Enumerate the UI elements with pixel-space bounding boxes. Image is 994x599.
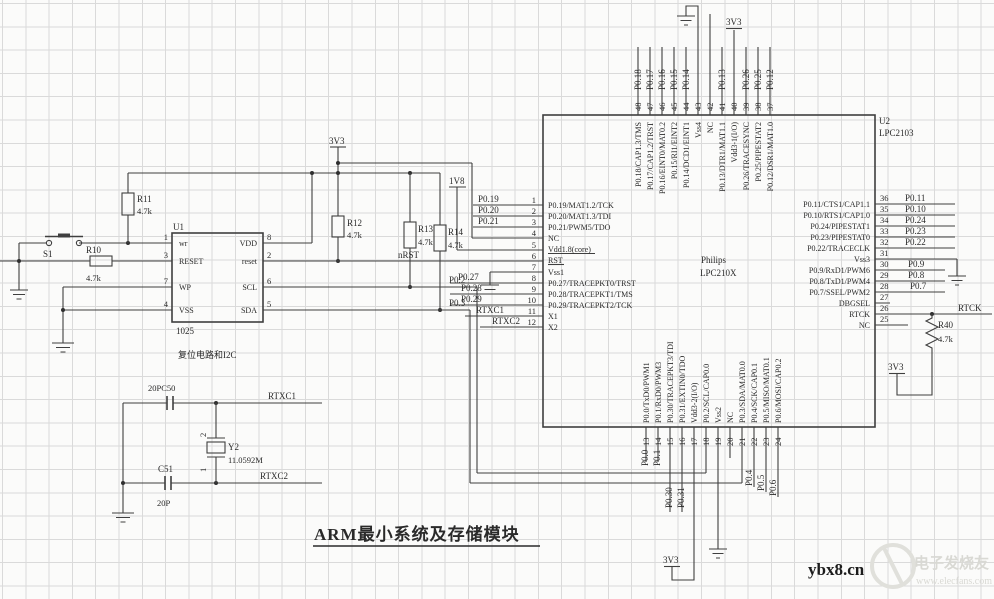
u2-pin-num: 17	[689, 438, 699, 447]
net-label: P0.18	[633, 69, 643, 90]
u1-pin-num: 2	[267, 250, 271, 260]
net-label: RTXC1	[476, 305, 504, 315]
ground-icon	[52, 343, 74, 352]
u1-pin-num: 4	[164, 299, 169, 309]
watermark: ybx8.cn 电子发烧友 www.elecfans.com	[808, 545, 992, 587]
u2-pin-num: 32	[880, 237, 889, 247]
u1-wiring	[0, 241, 172, 343]
net-label: P0.10	[905, 204, 926, 214]
net-label-nrst: nRST	[398, 250, 420, 260]
u2-pin-name: DBGSEL	[839, 299, 870, 308]
u2-pin-name: P0.27/TRACEPKT0/TRST	[548, 279, 636, 288]
schematic-drawing: U1 1025 复位电路和I2C wr RESET WP VSS VDD res…	[0, 0, 994, 599]
u2-pin-num: 2	[532, 206, 536, 216]
ground-icon	[709, 549, 727, 558]
net-label: P0.11	[905, 193, 925, 203]
u2-pin-num: 7	[532, 262, 536, 272]
u2-pin-name: P0.22/TRACECLK	[807, 244, 870, 253]
r13-value: 4.7k	[418, 237, 434, 247]
ground-icon	[677, 16, 695, 25]
u2-pin-num: 27	[880, 292, 889, 302]
net-label-rtxc1: RTXC1	[268, 391, 296, 401]
y2-ref: Y2	[228, 442, 239, 452]
watermark-brand: 电子发烧友	[914, 554, 989, 572]
net-label: P0.26	[741, 69, 751, 90]
u2-pin-name: X2	[548, 323, 558, 332]
c50-label: 20PC50	[148, 383, 175, 393]
u2-pin-name: Vss3	[854, 255, 870, 264]
u2-family: LPC210X	[700, 268, 737, 278]
u2-pin-name: NC	[706, 122, 715, 133]
u2-pin-name: P0.29/TRACEPKT2/TCK	[548, 301, 632, 310]
u2-pin-name: Vss2	[714, 407, 723, 423]
u2-pin-num: 31	[880, 248, 889, 258]
net-label: P0.0	[640, 449, 650, 466]
u2-pin-num: 13	[641, 438, 651, 447]
u2-pin-name: RTCK	[849, 310, 870, 319]
u2-right-pins: P0.11/CTS1/CAP1.1 P0.10/RTS1/CAP1.0 P0.2…	[803, 193, 992, 330]
y2-pin-num: 1	[198, 468, 208, 472]
net-label: P0.27	[458, 272, 479, 282]
net-label: P0.9	[908, 259, 925, 269]
u2-pin-num: 25	[880, 314, 889, 324]
u2-pin-name: P0.13/DTR1/MAT1.1	[718, 122, 727, 192]
u2-maker: Philips	[701, 255, 727, 265]
u2-pin-num: 33	[880, 226, 889, 236]
u2-pin-num: 47	[645, 103, 655, 112]
u2-pin-name: P0.4/SCK/CAP0.1	[750, 363, 759, 423]
u2-part: LPC2103	[879, 128, 914, 138]
watermark-url: www.elecfans.com	[916, 576, 992, 587]
u2-pin-name: P0.11/CTS1/CAP1.1	[803, 200, 870, 209]
u2-pin-name: P0.25/PIPESTAT2	[754, 122, 763, 182]
sheet-title: ARM最小系统及存储模块	[313, 524, 540, 546]
net-label-rtck: RTCK	[958, 303, 982, 313]
net-label: P0.30	[664, 487, 674, 508]
y2-crystal	[207, 403, 225, 483]
u2-pin-num: 37	[765, 103, 775, 112]
ground-icon	[948, 276, 966, 285]
u2-pin-num: 22	[749, 438, 759, 447]
u2-pin-name: Vdd3-2(I/O)	[690, 382, 699, 423]
net-label: P0.28	[461, 283, 482, 293]
net-label: P0.15	[669, 69, 679, 90]
power-label: 3V3	[888, 362, 904, 372]
u2-pin-num: 21	[737, 438, 747, 447]
r14-resistor: R14 4.7k	[434, 173, 464, 312]
net-label: P0.19	[478, 194, 499, 204]
u2-pin-num: 40	[729, 103, 739, 112]
u1-pin-name: SCL	[242, 283, 257, 292]
u2-pin-num: 29	[880, 270, 889, 280]
u2-ref: U2	[879, 116, 890, 126]
r12-ref: R12	[347, 218, 362, 228]
net-label: P0.23	[905, 226, 926, 236]
r11-resistor: R11 4.7k	[122, 173, 153, 243]
u2-bottom-pins: 3V3 P0.0/TxD0/PWM1 P0.1/RxD0/PWM3 P0.30/…	[640, 341, 783, 580]
r40-value: 4.7k	[938, 334, 954, 344]
u2-pin-num: 46	[657, 103, 667, 112]
u2-pin-num: 30	[880, 259, 889, 269]
u2-pin-name: P0.24/PIPESTAT1	[810, 222, 870, 231]
u2-pin-name: P0.18/CAP1.3/TMS	[634, 122, 643, 187]
u2-pin-num: NC	[859, 321, 870, 330]
u2-pin-num: 23	[761, 438, 771, 447]
u2-pin-num: 15	[665, 438, 675, 447]
u2-pin-num: 45	[669, 103, 679, 112]
u2-pin-name: P0.19/MAT1.2/TCK	[548, 201, 614, 210]
r13-ref: R13	[418, 224, 434, 234]
u2-pin-name: P0.6/MOSI/CAP0.2	[774, 359, 783, 423]
watermark-site: ybx8.cn	[808, 560, 865, 579]
u2-pin-name: Vss4	[694, 122, 703, 138]
r11-value: 4.7k	[137, 206, 153, 216]
u2-pin-num: 41	[717, 103, 727, 112]
u2-pin-name: P0.12/DSR1/MAT1.0	[766, 122, 775, 191]
u1-pin-num: 8	[267, 232, 271, 242]
net-label: P0.20	[478, 205, 499, 215]
net-label: P0.4	[744, 469, 754, 486]
u2-pin-name: P0.3/SDA/MAT0.0	[738, 361, 747, 423]
u2-pin-num: 4	[532, 228, 537, 238]
title-text: ARM最小系统及存储模块	[314, 524, 520, 544]
u2-pin-num: 35	[880, 204, 889, 214]
u1-pin-name: wr	[179, 239, 188, 248]
power-label: 1V8	[449, 176, 465, 186]
u2-pin-name: P0.23/PIPESTAT0	[810, 233, 870, 242]
power-label: 3V3	[329, 136, 345, 146]
power-flag-3v3-main: 3V3	[329, 136, 346, 147]
u2-pin-name: P0.9/RxD1/PWM6	[809, 266, 870, 275]
u2-pin-name: X1	[548, 312, 558, 321]
u2-pin-name: P0.17/CAP1.2/TRST	[646, 122, 655, 190]
u2-pin-name: P0.31/EXTIN0/TDO	[678, 355, 687, 423]
u2-pin-num: 39	[741, 103, 751, 112]
u1-pin-num: 1	[164, 232, 168, 242]
u2-pin-name: P0.28/TRACEPKT1/TMS	[548, 290, 633, 299]
u2-pin-num: 44	[681, 102, 691, 111]
u1-pin-name: WP	[179, 283, 192, 292]
c51-capacitor	[165, 476, 171, 490]
r10-value: 4.7k	[86, 273, 102, 283]
u1-eeprom-reset-chip: U1 1025 复位电路和I2C wr RESET WP VSS VDD res…	[164, 222, 272, 360]
net-label: P0.6	[768, 479, 778, 496]
r11-ref: R11	[137, 194, 152, 204]
net-label: P0.13	[717, 69, 727, 90]
r14-value: 4.7k	[448, 240, 464, 250]
schematic-sheet: U1 1025 复位电路和I2C wr RESET WP VSS VDD res…	[0, 0, 994, 599]
u2-pin-num: 1	[532, 195, 536, 205]
u1-pin-name: SDA	[241, 306, 257, 315]
u1-pin-num: 3	[164, 250, 168, 260]
u2-pin-name: NC	[548, 234, 559, 243]
u2-pin-num: 43	[693, 103, 703, 112]
u2-pin-name: P0.20/MAT1.3/TDI	[548, 212, 611, 221]
u2-pin-num: 6	[532, 251, 536, 261]
u2-pin-num: 11	[528, 306, 536, 316]
u2-pin-name: NC	[726, 412, 735, 423]
u2-pin-num: 9	[532, 284, 536, 294]
r12-value: 4.7k	[347, 230, 363, 240]
u2-pin-num: 34	[880, 215, 889, 225]
net-label-rtxc2: RTXC2	[260, 471, 288, 481]
u1-pin-num: 5	[267, 299, 271, 309]
u2-pin-name: P0.30/TRACEPKT3/TDI	[666, 341, 675, 423]
u2-pin-num: 10	[528, 295, 537, 305]
net-label: P0.17	[645, 69, 655, 90]
crystal-circuit: 20PC50 C51 20P 2 1 Y2 11.0592M RTXC1 RTX…	[112, 383, 322, 522]
u2-top-pins: 3V3 P0.18/CAP1.3/TMS P0.17/CAP1.2/TRST P…	[633, 6, 775, 194]
u2-pin-num: 28	[880, 281, 889, 291]
y2-value: 11.0592M	[228, 455, 263, 465]
u2-pin-name: P0.7/SSEL/PWM2	[809, 288, 870, 297]
u2-pin-name: P0.10/RTS1/CAP1.0	[803, 211, 870, 220]
power-label: 3V3	[663, 555, 679, 565]
u1-pin-num: 7	[164, 276, 168, 286]
u1-ref: U1	[173, 222, 184, 232]
net-label: P0.5	[756, 474, 766, 491]
r12-resistor: R12 4.7k	[332, 216, 363, 263]
net-label: RTXC2	[492, 316, 520, 326]
c51-ref: C51	[158, 464, 173, 474]
u2-pin-num: 38	[753, 103, 763, 112]
u1-pin-num: 6	[267, 276, 271, 286]
net-label: P0.16	[657, 69, 667, 90]
ground-icon	[10, 290, 28, 299]
u1-part: 1025	[176, 326, 195, 336]
net-label: P0.14	[681, 69, 691, 90]
net-label: P0.22	[905, 237, 926, 247]
net-label: P0.21	[478, 216, 499, 226]
net-label: P0.7	[910, 281, 927, 291]
r13-resistor: R13 4.7k	[404, 173, 434, 289]
r40-ref: R40	[938, 320, 954, 330]
u2-pin-name: Vss1	[548, 268, 564, 277]
net-label: P0.1	[652, 450, 662, 466]
u2-pin-num: 26	[880, 303, 889, 313]
c51-value: 20P	[157, 498, 171, 508]
u2-pin-num: 36	[880, 193, 889, 203]
u2-pin-num: 20	[725, 438, 735, 447]
net-label: P0.25	[753, 69, 763, 90]
net-label: P0.24	[905, 215, 926, 225]
power-label: 3V3	[726, 17, 742, 27]
u1-pin-name: VDD	[240, 239, 258, 248]
u2-pin-num: 14	[653, 437, 663, 446]
u2-pin-name: P0.15/RI1/EINT2	[670, 122, 679, 179]
r10-resistor: R10 4.7k	[86, 245, 112, 283]
y2-pin-num: 2	[198, 433, 208, 437]
u2-pin-name: RST	[548, 256, 563, 265]
net-label: P0.29	[461, 294, 482, 304]
u1-pin-name: VSS	[179, 306, 194, 315]
u2-pin-name: P0.0/TxD0/PWM1	[642, 362, 651, 423]
u1-pin-name: reset	[242, 257, 258, 266]
ground-icon	[112, 513, 134, 522]
u2-pin-num: 5	[532, 240, 536, 250]
net-label: P0.12	[765, 69, 775, 90]
u2-pin-name: P0.8/TxD1/PWM4	[809, 277, 870, 286]
net-label: P0.31	[676, 487, 686, 508]
s1-reset-button: S1	[43, 234, 83, 260]
u2-pin-num: 16	[677, 438, 687, 447]
u2-pin-name: P0.26/TRACESYNC	[742, 122, 751, 190]
u2-pin-num: 8	[532, 273, 536, 283]
u2-pin-num: 18	[701, 438, 711, 447]
s1-ref: S1	[43, 249, 53, 259]
u1-pin-name: RESET	[179, 257, 204, 266]
u2-pin-name: Vdd1.8(core)	[548, 245, 591, 254]
u2-pin-num: 3	[532, 217, 536, 227]
u2-pin-num: 42	[705, 103, 715, 112]
r10-ref: R10	[86, 245, 102, 255]
u2-pin-num: 12	[528, 317, 537, 327]
u2-pin-name: P0.5/MISO/MAT0.1	[762, 357, 771, 423]
c50-capacitor	[167, 396, 173, 410]
u2-pin-num: 24	[773, 437, 783, 446]
u2-pin-name: P0.14/DCD1/EINT1	[682, 122, 691, 188]
u2-pin-num: 19	[713, 438, 723, 447]
r14-ref: R14	[448, 227, 464, 237]
net-label: P0.8	[908, 270, 925, 280]
u1-caption: 复位电路和I2C	[178, 349, 237, 360]
u2-pin-name: P0.2/SCL/CAP0.0	[702, 364, 711, 423]
u2-pin-name: P0.16/EINT0/MAT0.2	[658, 122, 667, 194]
u2-pin-name: P0.1/RxD0/PWM3	[654, 362, 663, 423]
u2-pin-name: P0.21/PWM5/TDO	[548, 223, 611, 232]
u2-pin-name: Vdd3-1(I/O)	[730, 122, 739, 163]
u2-pin-num: 48	[633, 103, 643, 112]
